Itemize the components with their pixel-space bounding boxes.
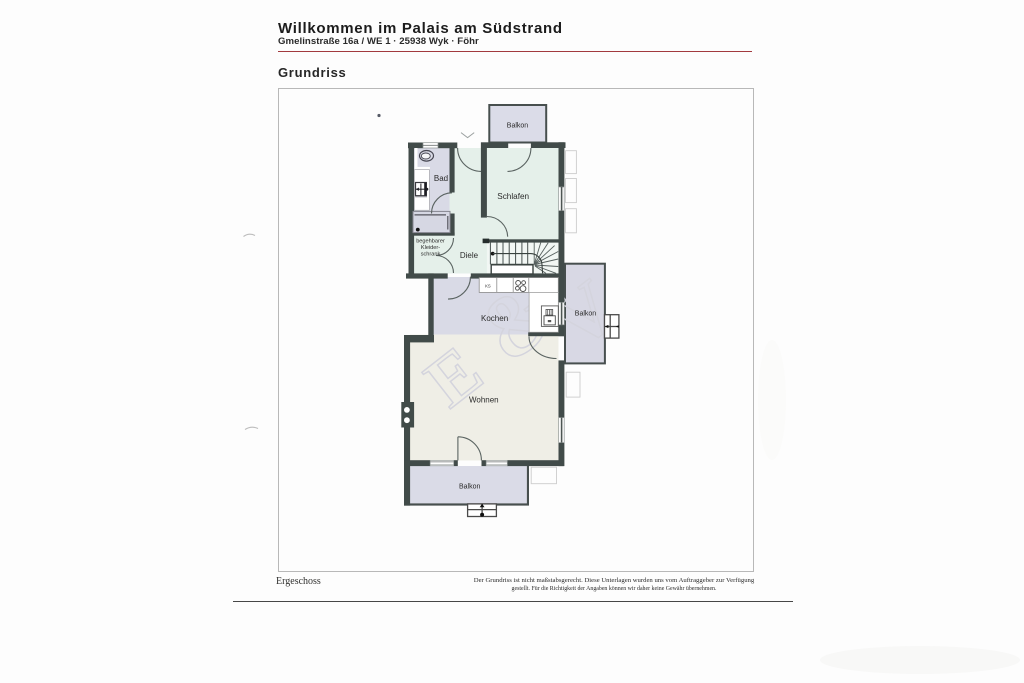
svg-text:begehbarer: begehbarer	[416, 238, 445, 244]
svg-text:Kochen: Kochen	[481, 314, 508, 323]
svg-text:Wohnen: Wohnen	[469, 396, 499, 405]
svg-text:Kleider-: Kleider-	[421, 245, 440, 251]
svg-text:Balkon: Balkon	[575, 311, 597, 318]
svg-text:Balkon: Balkon	[507, 123, 529, 130]
svg-text:Schlafen: Schlafen	[497, 192, 529, 201]
svg-text:Balkon: Balkon	[459, 483, 481, 490]
svg-text:Diele: Diele	[460, 251, 479, 260]
svg-text:Bad: Bad	[434, 174, 448, 183]
svg-text:KS: KS	[485, 283, 491, 288]
svg-text:schrank: schrank	[421, 251, 441, 257]
